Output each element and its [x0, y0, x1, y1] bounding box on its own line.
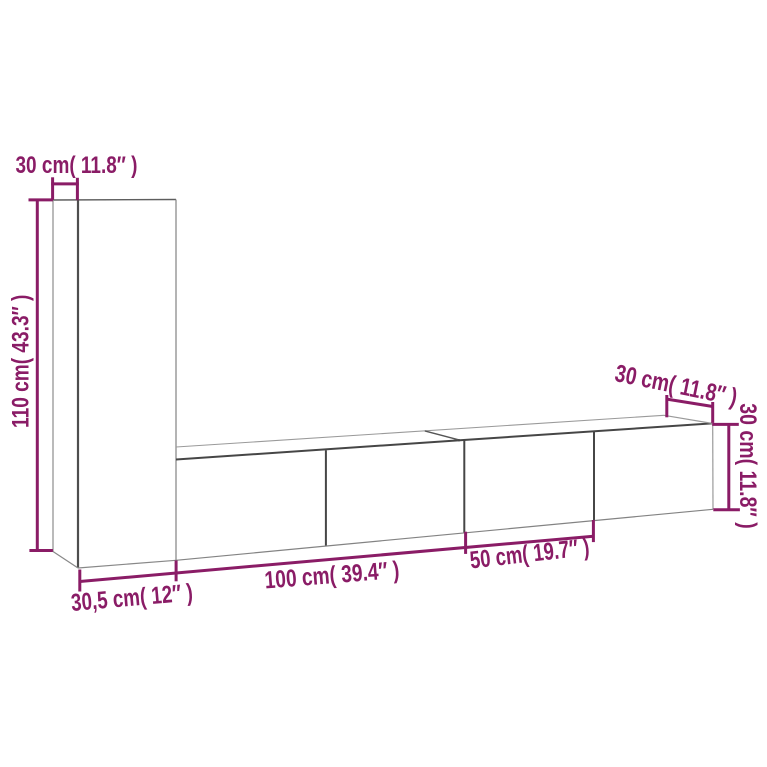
svg-text:110 cm( 43.3″ ): 110 cm( 43.3″ ) [8, 295, 35, 428]
svg-text:30 cm( 11.8″ ): 30 cm( 11.8″ ) [16, 152, 138, 179]
svg-text:30 cm( 11.8″ ): 30 cm( 11.8″ ) [734, 403, 761, 528]
